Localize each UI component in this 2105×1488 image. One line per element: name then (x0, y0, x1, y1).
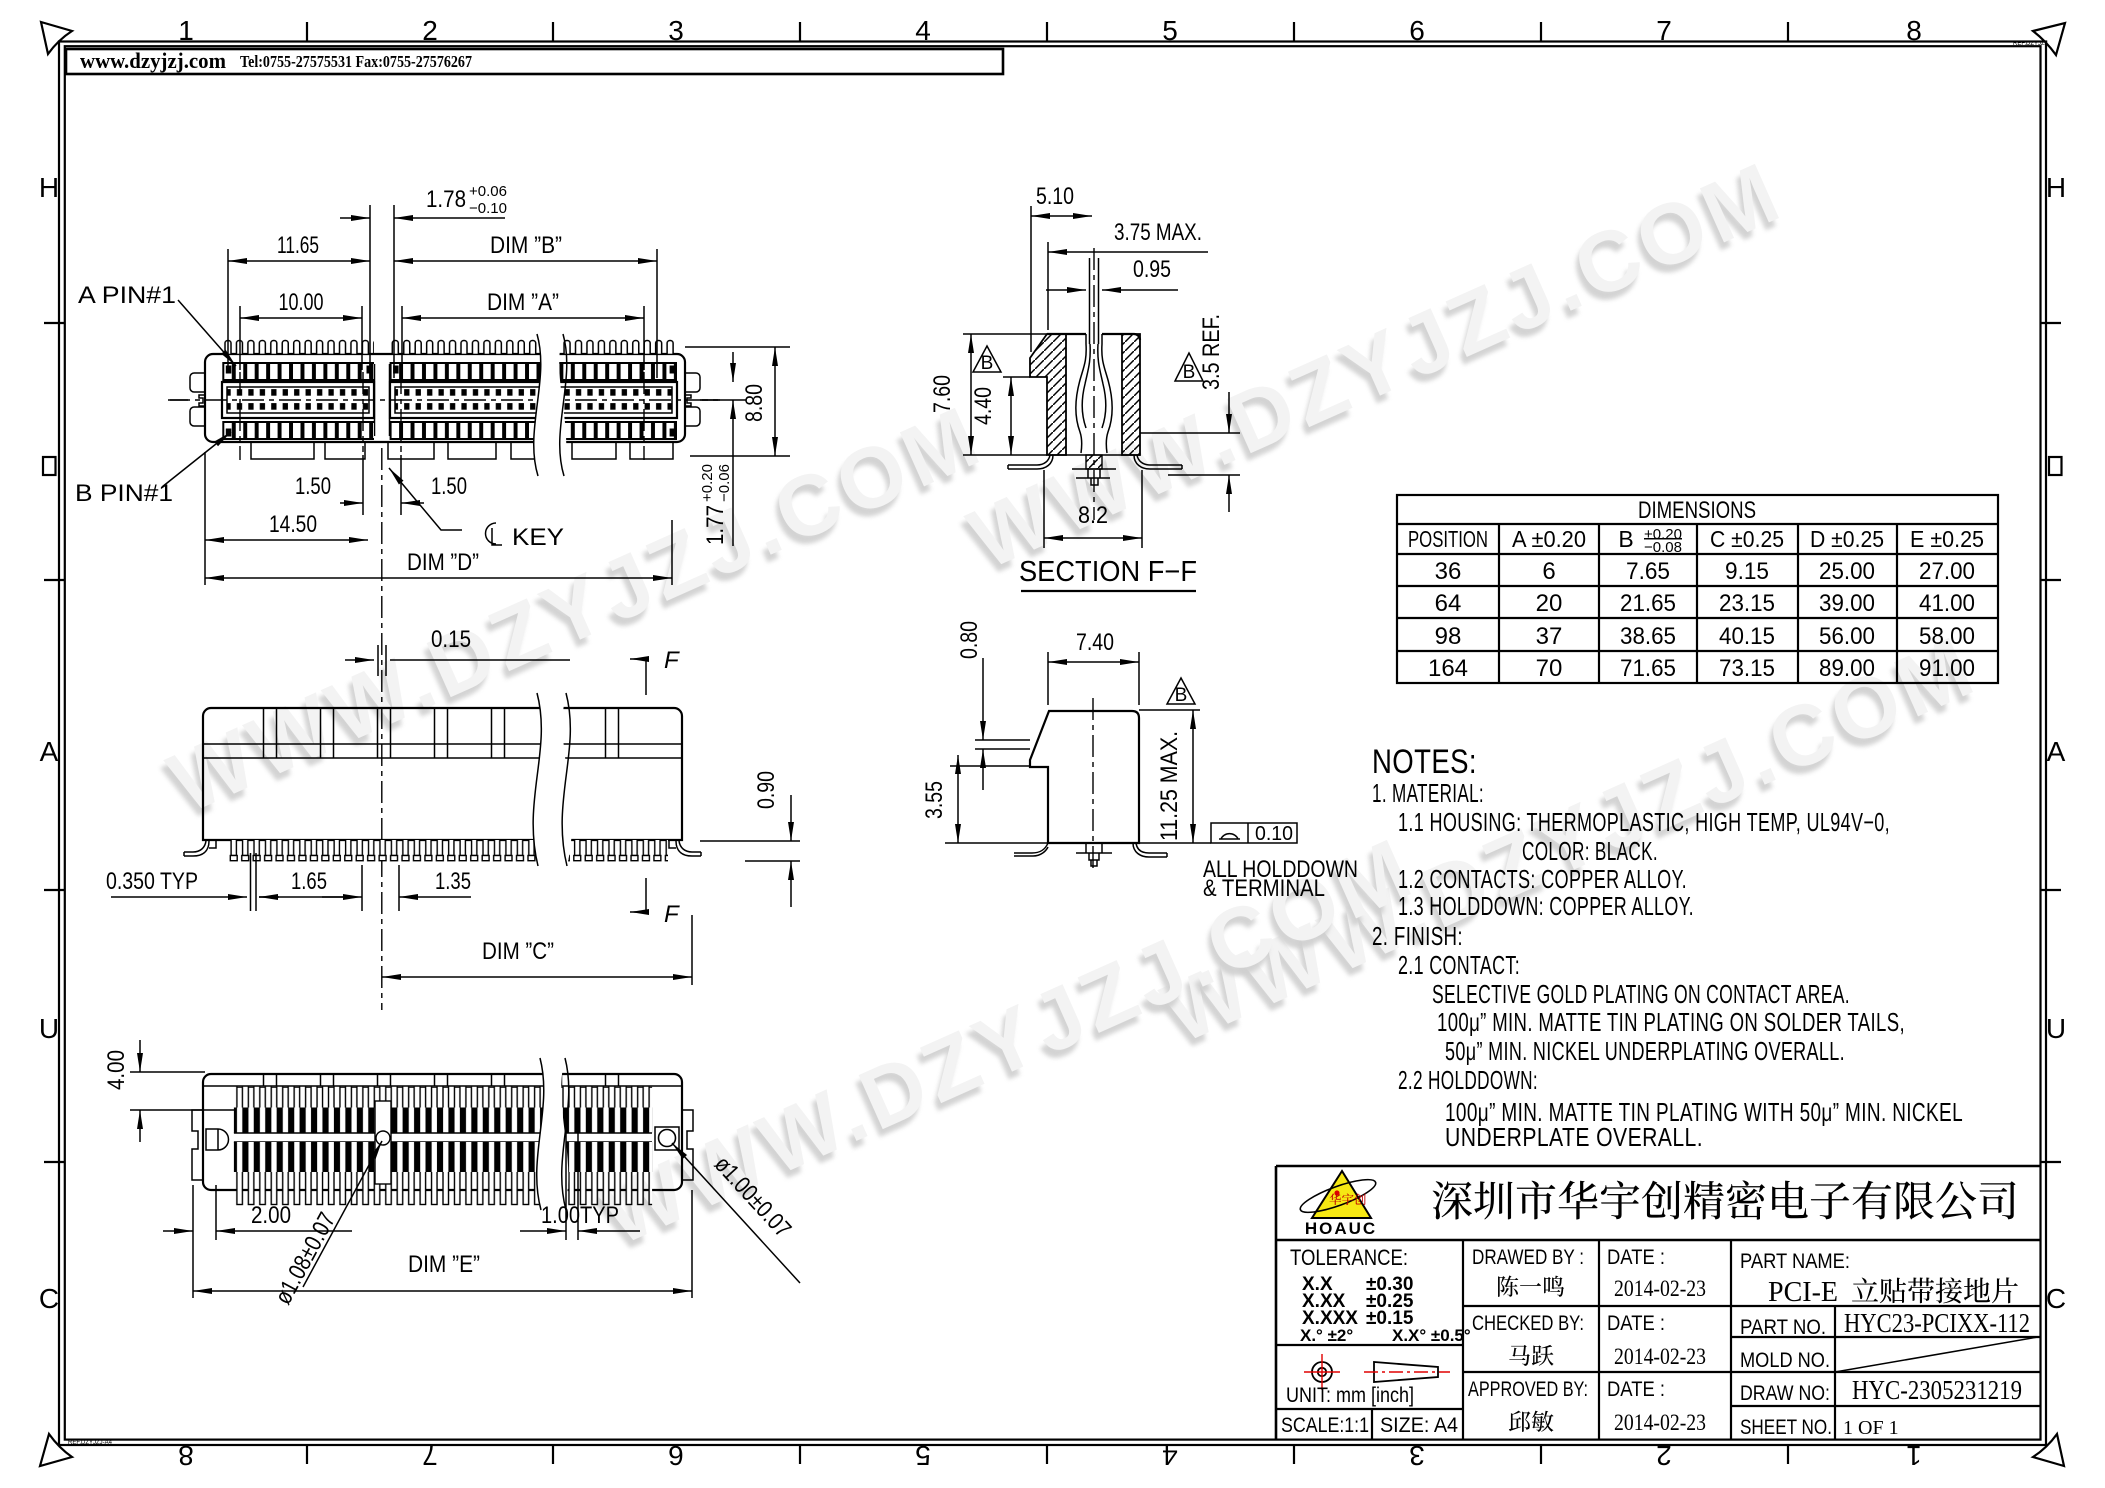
svg-text:SELECTIVE GOLD PLATING ON: SELECTIVE GOLD PLATING ON CONTACT AREA. (1432, 979, 1850, 1009)
svg-text:89.00: 89.00 (1819, 655, 1875, 682)
svg-text:KEY: KEY (512, 524, 564, 551)
svg-text:36: 36 (1435, 558, 1462, 585)
svg-text:E ±0.25: E ±0.25 (1910, 526, 1984, 552)
svg-text:& TERMINAL: & TERMINAL (1203, 875, 1325, 902)
svg-text:98: 98 (1435, 623, 1462, 650)
svg-text:TOLERANCE:: TOLERANCE: (1290, 1245, 1408, 1270)
svg-text:39.00: 39.00 (1819, 590, 1875, 617)
svg-text:−0.10: −0.10 (469, 200, 507, 217)
svg-text:+0.06: +0.06 (469, 183, 507, 200)
svg-text:DIMENSIONS: DIMENSIONS (1638, 497, 1756, 524)
svg-text:14.50: 14.50 (269, 511, 317, 538)
svg-text:64: 64 (1435, 590, 1462, 617)
svg-text:A: A (40, 736, 59, 767)
svg-text:POSITION: POSITION (1408, 526, 1488, 552)
svg-text:5: 5 (915, 1440, 931, 1471)
svg-text:B: B (1618, 526, 1633, 552)
svg-text:C: C (2046, 1283, 2066, 1314)
svg-text:PART NAME:: PART NAME: (1740, 1250, 1850, 1273)
svg-text:2: 2 (1656, 1440, 1672, 1471)
svg-text:1.3 HOLDDOWN: COPPER ALLOY.: 1.3 HOLDDOWN: COPPER ALLOY. (1398, 891, 1694, 921)
svg-text:2.2 HOLDDOWN:: 2.2 HOLDDOWN: (1398, 1065, 1538, 1095)
svg-text:7.40: 7.40 (1076, 629, 1114, 656)
svg-text:40.15: 40.15 (1719, 623, 1775, 650)
svg-text:H: H (39, 172, 59, 203)
svg-text:4: 4 (915, 15, 931, 46)
svg-text:56.00: 56.00 (1819, 623, 1875, 650)
svg-text:SIZE: A4: SIZE: A4 (1380, 1414, 1458, 1437)
svg-text:5.10: 5.10 (1036, 183, 1074, 210)
svg-text:1: 1 (178, 15, 194, 46)
svg-text:38.65: 38.65 (1620, 623, 1676, 650)
svg-text:4: 4 (1162, 1440, 1178, 1471)
svg-text:50μ” MIN. NICKEL UNDERPLATI: 50μ” MIN. NICKEL UNDERPLATING OVERALL. (1445, 1036, 1845, 1066)
svg-text:1.78: 1.78 (426, 186, 466, 213)
svg-text:1. MATERIAL:: 1. MATERIAL: (1372, 778, 1484, 808)
svg-text:0.350 TYP: 0.350 TYP (106, 868, 198, 895)
svg-text:37: 37 (1536, 623, 1563, 650)
svg-text:DATE :: DATE : (1607, 1312, 1665, 1335)
svg-text:B: B (1175, 685, 1188, 706)
svg-text:1 OF 1: 1 OF 1 (1843, 1417, 1899, 1439)
svg-text:3.55: 3.55 (921, 781, 948, 819)
svg-text:8: 8 (1906, 15, 1922, 46)
svg-text:DRAW NO:: DRAW NO: (1740, 1382, 1830, 1405)
svg-text:1.00TYP: 1.00TYP (541, 1202, 619, 1229)
svg-text:11.65: 11.65 (277, 232, 319, 259)
svg-text:B PIN#1: B PIN#1 (75, 480, 173, 507)
svg-text:71.65: 71.65 (1620, 655, 1676, 682)
svg-text:7: 7 (1656, 15, 1672, 46)
svg-text:HYC23-PCIXX-112: HYC23-PCIXX-112 (1844, 1308, 2030, 1338)
svg-text:SHEET NO.: SHEET NO. (1740, 1416, 1832, 1439)
svg-text:DIM ”C”: DIM ”C” (482, 938, 554, 965)
svg-text:2. FINISH:: 2. FINISH: (1372, 921, 1463, 951)
svg-text:0.15: 0.15 (431, 626, 471, 653)
svg-text:8.2: 8.2 (1078, 502, 1108, 529)
svg-text:91.00: 91.00 (1919, 655, 1975, 682)
svg-text:9.15: 9.15 (1725, 558, 1769, 585)
svg-text:DIM ”E”: DIM ”E” (408, 1251, 480, 1278)
svg-text:70: 70 (1536, 655, 1563, 682)
svg-text:20: 20 (1536, 590, 1563, 617)
svg-text:7: 7 (422, 1440, 438, 1471)
svg-text:DATE :: DATE : (1607, 1378, 1665, 1401)
svg-text:H: H (2046, 172, 2066, 203)
svg-text:A ±0.20: A ±0.20 (1512, 526, 1586, 552)
svg-text:+0.20: +0.20 (699, 464, 716, 502)
svg-text:8: 8 (178, 1440, 194, 1471)
svg-text:CHECKED BY:: CHECKED BY: (1472, 1312, 1584, 1335)
svg-text:3: 3 (668, 15, 684, 46)
svg-text:F: F (664, 647, 680, 674)
svg-text:REF.DZYJZJ: REF.DZYJZJ (2013, 41, 2048, 47)
svg-text:SCALE:1:1: SCALE:1:1 (1281, 1414, 1369, 1437)
svg-text:4.00: 4.00 (103, 1050, 130, 1090)
svg-text:6: 6 (1409, 15, 1425, 46)
svg-text:8.80: 8.80 (741, 384, 768, 422)
svg-text:2014-02-23: 2014-02-23 (1614, 1344, 1706, 1369)
svg-text:HOAUC: HOAUC (1305, 1219, 1377, 1238)
svg-text:23.15: 23.15 (1719, 590, 1775, 617)
svg-text:1.2 CONTACTS: COPPER ALLOY.: 1.2 CONTACTS: COPPER ALLOY. (1398, 864, 1687, 894)
svg-text:APPROVED BY:: APPROVED BY: (1468, 1378, 1588, 1401)
svg-text:4.40: 4.40 (970, 387, 997, 425)
svg-text:6: 6 (668, 1440, 684, 1471)
svg-text:F: F (664, 901, 680, 928)
svg-text:DIM ”D”: DIM ”D” (407, 549, 479, 576)
svg-text:U: U (2046, 1013, 2066, 1044)
svg-text:0.10: 0.10 (1255, 823, 1293, 845)
svg-text:MOLD NO.: MOLD NO. (1740, 1349, 1830, 1372)
svg-text:Tel:0755-27575531 Fax:0755-27: Tel:0755-27575531 Fax:0755-27576267 (240, 52, 472, 71)
svg-text:PCI-E: PCI-E (1768, 1277, 1838, 1308)
svg-text:0.90: 0.90 (753, 771, 780, 809)
svg-text:6: 6 (1542, 558, 1555, 585)
svg-text:A PIN#1: A PIN#1 (78, 282, 176, 309)
svg-text:3: 3 (1409, 1440, 1425, 1471)
svg-text:100μ” MIN. MATTE TIN PLATI: 100μ” MIN. MATTE TIN PLATING ON SOLDER T… (1437, 1007, 1905, 1037)
svg-text:2014-02-23: 2014-02-23 (1614, 1410, 1706, 1435)
svg-text:DIM ”A”: DIM ”A” (487, 289, 559, 316)
svg-text:41.00: 41.00 (1919, 590, 1975, 617)
svg-text:1: 1 (1906, 1440, 1922, 1471)
svg-text:7.60: 7.60 (929, 375, 956, 413)
svg-text:2: 2 (422, 15, 438, 46)
svg-text:10.00: 10.00 (279, 289, 324, 316)
svg-text:2.00: 2.00 (251, 1202, 291, 1229)
svg-text:1.50: 1.50 (295, 473, 331, 500)
svg-text:3.75 MAX.: 3.75 MAX. (1114, 219, 1202, 246)
svg-text:C ±0.25: C ±0.25 (1710, 526, 1784, 552)
svg-text:1.1 HOUSING: THERMOPLASTIC,: 1.1 HOUSING: THERMOPLASTIC, HIGH TEMP, U… (1398, 807, 1890, 837)
svg-text:DATE :: DATE : (1607, 1246, 1665, 1269)
svg-text:DIM ”B”: DIM ”B” (490, 232, 562, 259)
svg-text:21.65: 21.65 (1620, 590, 1676, 617)
svg-text:11.25 MAX.: 11.25 MAX. (1156, 731, 1183, 841)
svg-text:1.50: 1.50 (431, 473, 467, 500)
svg-text:UNIT: mm [inch]: UNIT: mm [inch] (1286, 1384, 1414, 1407)
svg-text:UNDERPLATE OVERALL.: UNDERPLATE OVERALL. (1445, 1122, 1703, 1152)
svg-text:1.35: 1.35 (435, 868, 471, 895)
svg-text:2014-02-23: 2014-02-23 (1614, 1276, 1706, 1301)
svg-text:C: C (39, 1283, 59, 1314)
svg-text:1.77: 1.77 (702, 505, 729, 545)
svg-text:B: B (981, 353, 994, 374)
svg-text:www.dzyjzj.com: www.dzyjzj.com (80, 48, 226, 73)
svg-text:1.65: 1.65 (291, 868, 327, 895)
svg-text:D ±0.25: D ±0.25 (1810, 526, 1884, 552)
svg-text:NOTES:: NOTES: (1372, 743, 1477, 781)
svg-text:7.65: 7.65 (1626, 558, 1670, 585)
svg-text:25.00: 25.00 (1819, 558, 1875, 585)
svg-text:X.° ±2°: X.° ±2° (1300, 1326, 1353, 1345)
svg-text:−0.06: −0.06 (716, 464, 733, 502)
svg-text:PART NO.: PART NO. (1740, 1316, 1826, 1339)
svg-text:0.80: 0.80 (956, 621, 983, 659)
svg-text:COLOR: BLACK.: COLOR: BLACK. (1522, 836, 1658, 866)
svg-text:164: 164 (1428, 655, 1468, 682)
svg-text:HYC-2305231219: HYC-2305231219 (1852, 1375, 2022, 1405)
svg-text:2.1 CONTACT:: 2.1 CONTACT: (1398, 950, 1520, 980)
svg-text:73.15: 73.15 (1719, 655, 1775, 682)
svg-text:A: A (2047, 736, 2066, 767)
svg-text:0.95: 0.95 (1133, 256, 1171, 283)
svg-text:−0.08: −0.08 (1644, 539, 1682, 556)
svg-text:U: U (39, 1013, 59, 1044)
svg-text:B: B (1183, 362, 1196, 383)
svg-text:DRAWED BY :: DRAWED BY : (1472, 1246, 1584, 1269)
svg-text:X.X° ±0.5°: X.X° ±0.5° (1392, 1326, 1471, 1345)
svg-text:27.00: 27.00 (1919, 558, 1975, 585)
svg-text:REF.DZYJZJ-A4: REF.DZYJZJ-A4 (68, 1440, 113, 1446)
svg-text:3.5 REF.: 3.5 REF. (1198, 314, 1225, 390)
svg-text:58.00: 58.00 (1919, 623, 1975, 650)
svg-text:SECTION F−F: SECTION F−F (1019, 556, 1197, 588)
svg-text:5: 5 (1162, 15, 1178, 46)
